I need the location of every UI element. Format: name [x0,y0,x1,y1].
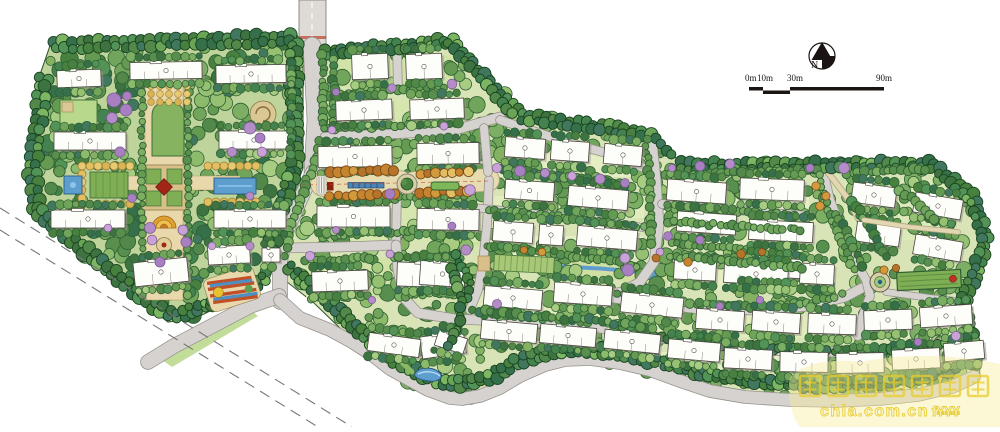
svg-text:10m: 10m [757,73,773,83]
svg-text:N: N [811,60,818,71]
svg-text:f¥¥¥: f¥¥¥ [928,403,960,419]
svg-text:chla.com.cn: chla.com.cn [820,403,929,420]
svg-text:30m: 30m [787,73,803,83]
svg-text:90m: 90m [876,73,892,83]
svg-text:0m: 0m [745,73,757,83]
